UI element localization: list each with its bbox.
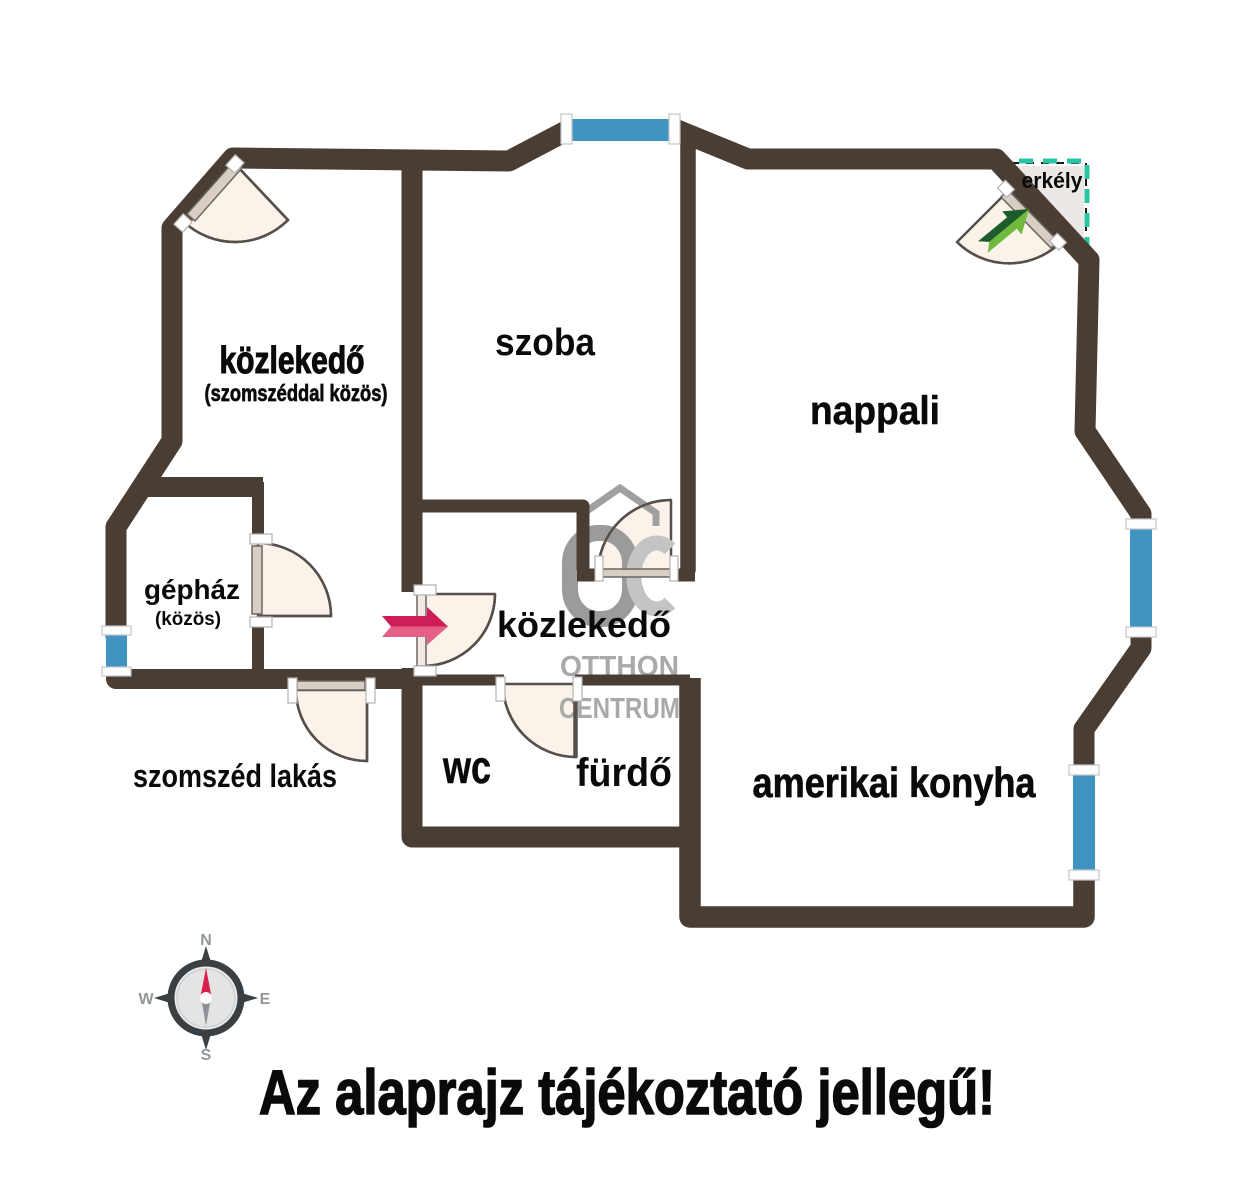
svg-text:E: E [260, 991, 271, 1008]
svg-text:N: N [200, 932, 212, 949]
svg-text:fürdő: fürdő [576, 751, 672, 795]
svg-text:erkély: erkély [1022, 168, 1084, 193]
svg-text:amerikai konyha: amerikai konyha [753, 759, 1037, 806]
svg-text:közlekedő: közlekedő [220, 340, 365, 382]
svg-text:(szomszéddal közös): (szomszéddal közös) [205, 380, 388, 406]
svg-text:(közös): (közös) [155, 609, 221, 630]
svg-text:szoba: szoba [495, 322, 596, 364]
svg-text:Az alaprajz tájékoztató jelleg: Az alaprajz tájékoztató jellegű! [259, 1058, 995, 1128]
svg-text:közlekedő: közlekedő [497, 604, 671, 645]
svg-text:W: W [138, 991, 154, 1008]
svg-text:nappali: nappali [810, 389, 940, 433]
svg-text:szomszéd lakás: szomszéd lakás [133, 758, 337, 794]
svg-text:S: S [201, 1047, 212, 1064]
svg-text:gépház: gépház [144, 574, 240, 605]
svg-text:wc: wc [442, 741, 491, 793]
